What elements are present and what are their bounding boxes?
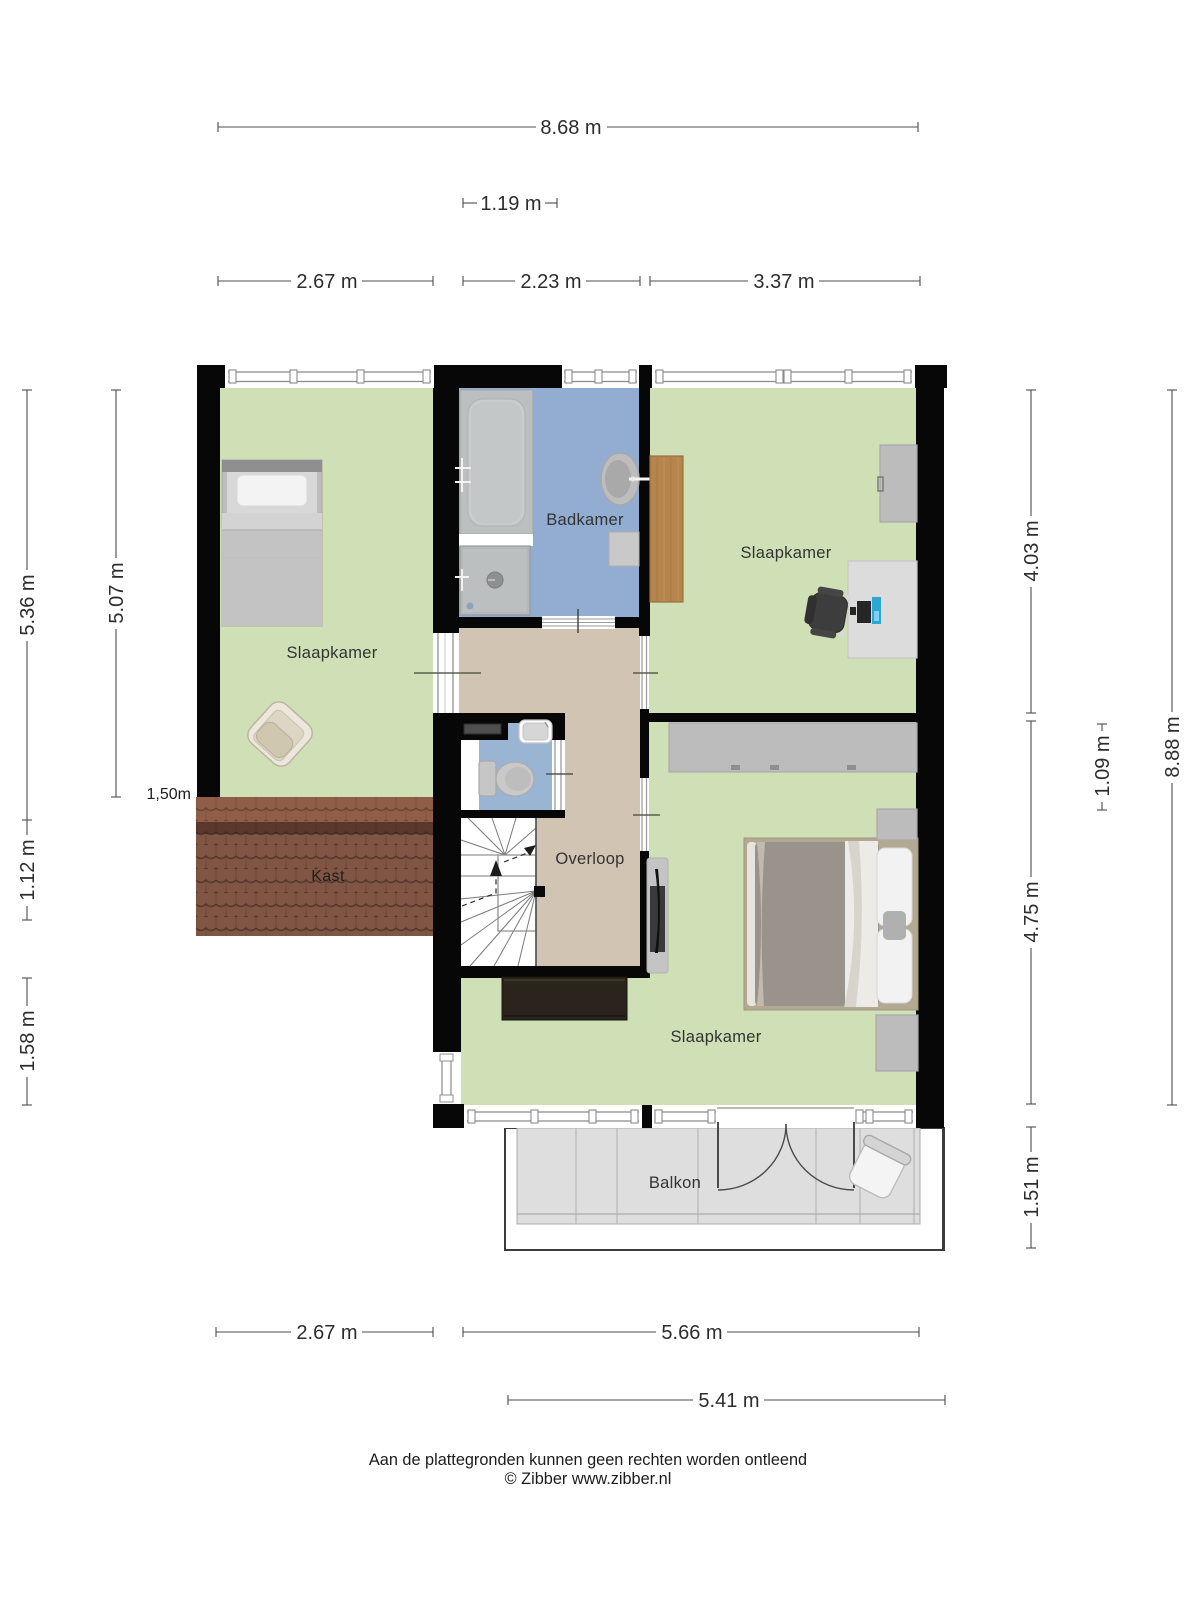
svg-text:Overloop: Overloop (555, 850, 624, 868)
svg-text:Slaapkamer: Slaapkamer (740, 544, 831, 562)
svg-text:2.67 m: 2.67 m (296, 1322, 357, 1344)
svg-text:2.67 m: 2.67 m (296, 271, 357, 293)
svg-text:8.68 m: 8.68 m (540, 117, 601, 139)
svg-text:5.66 m: 5.66 m (661, 1322, 722, 1344)
svg-text:1,50m: 1,50m (147, 786, 191, 803)
svg-text:1.12 m: 1.12 m (17, 839, 39, 900)
svg-text:1.09 m: 1.09 m (1092, 735, 1114, 796)
svg-text:Badkamer: Badkamer (546, 511, 624, 529)
svg-text:Kast: Kast (311, 868, 345, 885)
svg-text:3.37 m: 3.37 m (753, 271, 814, 293)
svg-text:8.88 m: 8.88 m (1162, 716, 1184, 777)
svg-text:1.19 m: 1.19 m (480, 193, 541, 215)
svg-text:5.36 m: 5.36 m (17, 574, 39, 635)
svg-text:1.58 m: 1.58 m (17, 1010, 39, 1071)
svg-text:Slaapkamer: Slaapkamer (286, 644, 377, 662)
svg-text:© Zibber www.zibber.nl: © Zibber www.zibber.nl (505, 1470, 672, 1488)
svg-text:4.75 m: 4.75 m (1021, 881, 1043, 942)
svg-text:5.41 m: 5.41 m (698, 1390, 759, 1412)
svg-text:4.03 m: 4.03 m (1021, 520, 1043, 581)
svg-text:Slaapkamer: Slaapkamer (670, 1028, 761, 1046)
svg-text:1.51 m: 1.51 m (1021, 1156, 1043, 1217)
svg-text:Aan de plattegronden kunnen ge: Aan de plattegronden kunnen geen rechten… (369, 1451, 807, 1469)
svg-text:Balkon: Balkon (649, 1174, 701, 1192)
svg-text:2.23 m: 2.23 m (520, 271, 581, 293)
svg-text:5.07 m: 5.07 m (106, 562, 128, 623)
